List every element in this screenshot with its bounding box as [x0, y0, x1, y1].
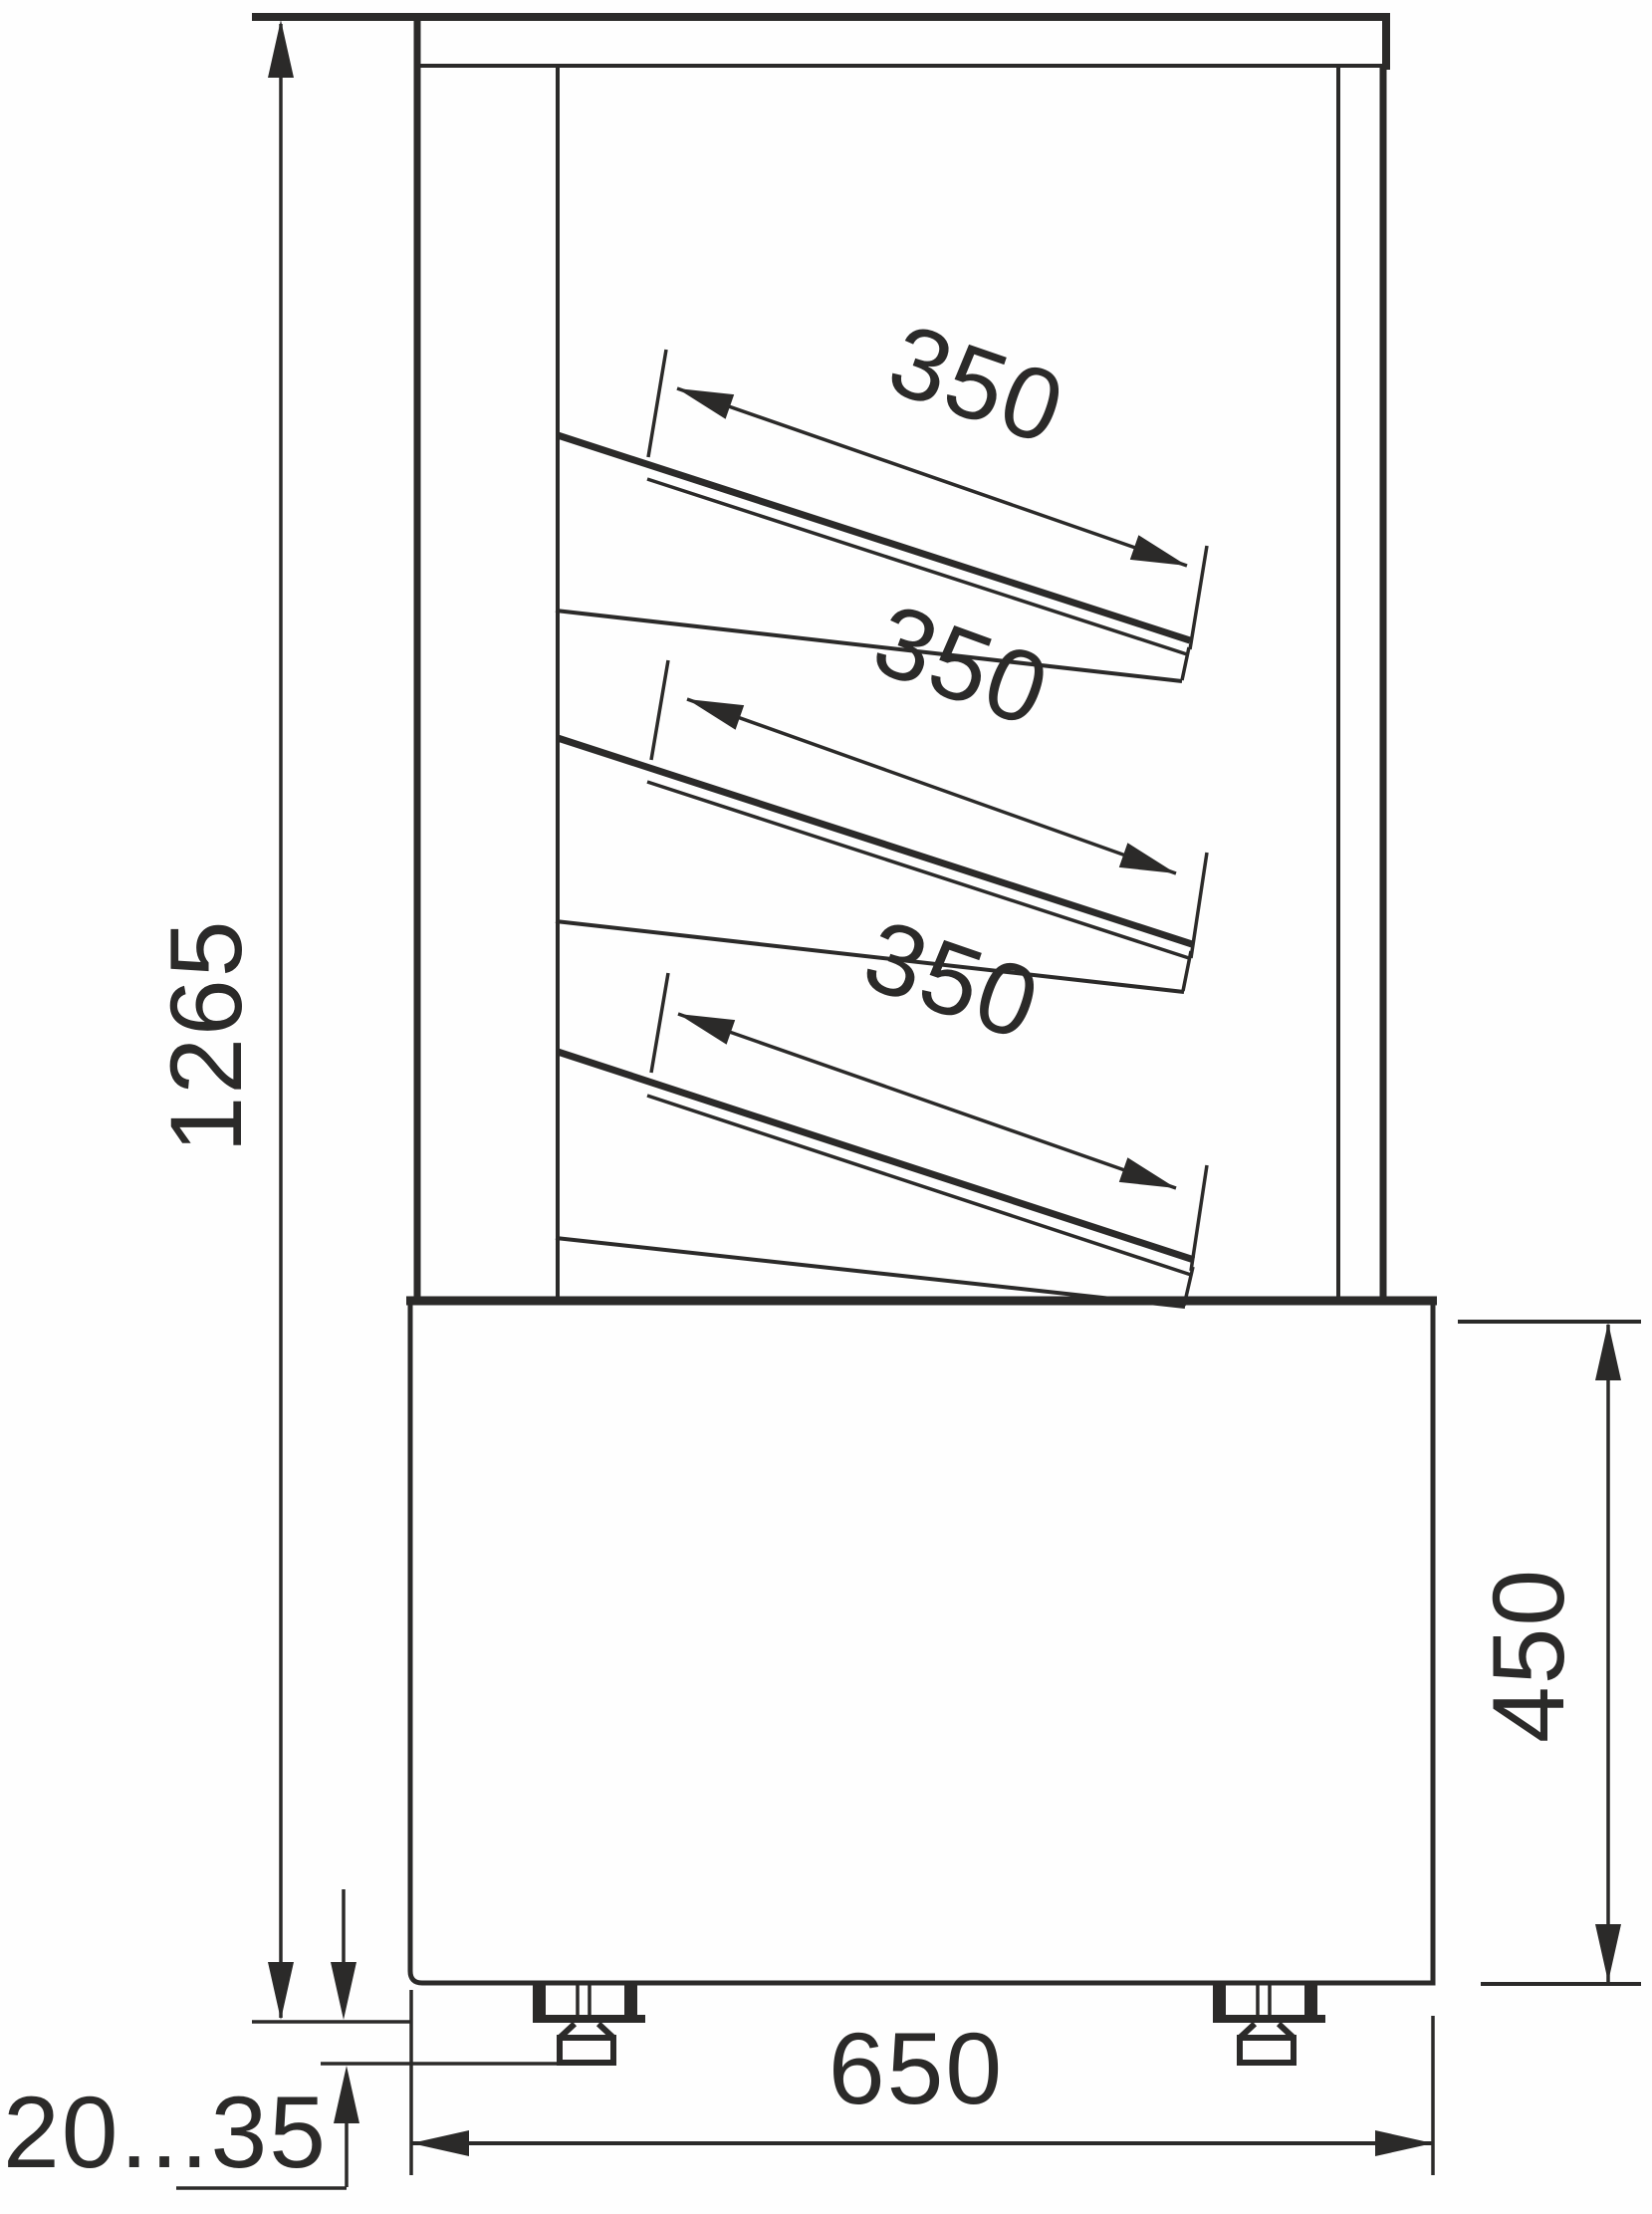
dim-shelf-2: 350 — [651, 582, 1207, 958]
dim-overall-height: 1265 — [149, 20, 412, 2022]
shelf-3-dim-line — [678, 1014, 1176, 1188]
foot-adjust-arrow-up-icon — [334, 2066, 359, 2123]
right-foot — [1213, 1983, 1325, 2063]
base-height-arrow-up-icon — [1595, 1323, 1621, 1380]
left-foot-pad — [560, 2038, 613, 2063]
base-height-label: 450 — [1472, 1568, 1585, 1743]
shelf-1-extension-right — [1190, 546, 1207, 649]
shelf-2-surface-line — [558, 738, 1192, 944]
shelf-3-glass-line — [647, 1096, 1191, 1275]
shelf-3-extension-right — [1191, 1165, 1207, 1271]
drawing-canvas: 1265 350 350 350 450 — [0, 0, 1652, 2209]
technical-drawing: 1265 350 350 350 450 — [0, 0, 1652, 2209]
shelf-1-surface-line — [558, 435, 1190, 640]
overall-height-arrow-down-icon — [268, 1962, 294, 2020]
left-foot — [533, 1983, 645, 2063]
shelf-2-extension-left — [651, 660, 668, 760]
overall-height-label: 1265 — [149, 919, 263, 1153]
base-outline — [410, 1305, 1433, 1983]
shelf-1-extension-left — [648, 350, 666, 457]
shelf-1-arrow-right-icon — [1130, 535, 1187, 566]
shelf-3-arrow-right-icon — [1119, 1157, 1176, 1188]
overall-height-arrow-up-icon — [268, 20, 294, 78]
shelf-3-depth-label: 350 — [851, 897, 1055, 1062]
cabinet-outline — [252, 13, 1437, 1983]
base-depth-label: 650 — [828, 2012, 1004, 2125]
base-height-arrow-down-icon — [1595, 1924, 1621, 1982]
shelf-3 — [556, 1052, 1194, 1307]
shelf-3-arrow-left-icon — [678, 1014, 735, 1045]
shelf-2-arrow-right-icon — [1119, 843, 1176, 873]
base-depth-arrow-right-icon — [1375, 2130, 1433, 2156]
shelf-1-arrow-left-icon — [677, 388, 734, 419]
dim-base-height: 450 — [1458, 1322, 1641, 1984]
foot-adjust-arrow-down-icon — [331, 1962, 356, 2020]
shelf-3-extension-left — [651, 973, 668, 1073]
shelf-2-depth-label: 350 — [860, 582, 1064, 748]
shelf-2-arrow-left-icon — [687, 699, 744, 730]
dim-shelf-3: 350 — [651, 897, 1207, 1271]
shelf-2-extension-right — [1191, 853, 1207, 958]
base-depth-arrow-left-icon — [411, 2130, 469, 2156]
foot-adjust-label: 20...35 — [3, 2076, 328, 2189]
shelf-1 — [556, 435, 1190, 681]
shelf-2-dim-line — [687, 699, 1176, 873]
right-foot-pad — [1240, 2038, 1294, 2063]
shelf-1-depth-label: 350 — [876, 302, 1079, 466]
